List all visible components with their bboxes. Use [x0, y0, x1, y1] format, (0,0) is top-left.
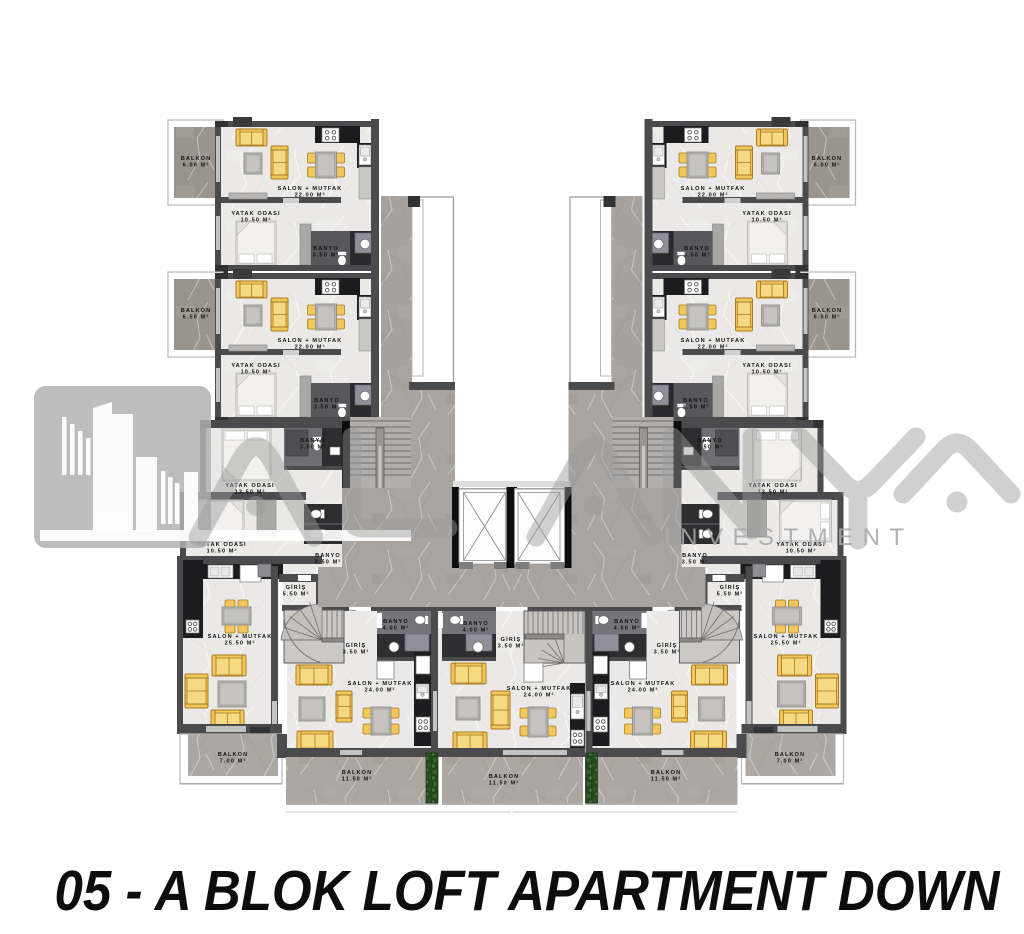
svg-text:3.50 M²: 3.50 M² [682, 558, 709, 565]
svg-text:3.50 M²: 3.50 M² [313, 251, 340, 258]
svg-text:BALKON: BALKON [651, 770, 682, 776]
svg-text:6.50 M²: 6.50 M² [183, 313, 210, 320]
svg-text:4.00 M²: 4.00 M² [614, 624, 641, 631]
svg-text:3.50 M²: 3.50 M² [315, 558, 342, 565]
svg-text:22.00 M²: 22.00 M² [295, 343, 326, 350]
svg-text:3.50 M²: 3.50 M² [314, 403, 341, 410]
svg-text:BALKON: BALKON [342, 770, 373, 776]
svg-text:SALON + MUTFAK: SALON + MUTFAK [754, 634, 819, 640]
svg-text:SALON + MUTFAK: SALON + MUTFAK [681, 338, 746, 344]
svg-text:BANYO: BANYO [313, 246, 339, 252]
svg-text:YATAK ODASI: YATAK ODASI [742, 363, 791, 369]
svg-text:3.50 M²: 3.50 M² [684, 251, 711, 258]
svg-text:BANYO: BANYO [684, 246, 710, 252]
svg-text:5.50 M²: 5.50 M² [717, 590, 744, 597]
svg-text:22.00 M²: 22.00 M² [698, 191, 729, 198]
svg-text:BALKON: BALKON [775, 752, 806, 758]
svg-text:4.00 M²: 4.00 M² [463, 626, 490, 633]
svg-text:6.00 M²: 6.00 M² [814, 161, 841, 168]
svg-text:3.50 M²: 3.50 M² [300, 443, 327, 450]
svg-text:BALKON: BALKON [489, 774, 520, 780]
svg-text:BANYO: BANYO [314, 398, 340, 404]
svg-text:BANYO: BANYO [315, 553, 341, 559]
svg-text:6.50 M²: 6.50 M² [814, 313, 841, 320]
svg-text:10.50 M²: 10.50 M² [207, 547, 238, 554]
svg-text:13.50 M²: 13.50 M² [758, 488, 789, 495]
svg-text:24.00 M²: 24.00 M² [365, 686, 396, 693]
svg-text:7.00 M²: 7.00 M² [777, 757, 804, 764]
svg-text:25.50 M²: 25.50 M² [225, 639, 256, 646]
svg-text:5.50 M²: 5.50 M² [283, 590, 310, 597]
svg-text:3.50 M²: 3.50 M² [697, 443, 724, 450]
svg-text:BALKON: BALKON [812, 156, 843, 162]
svg-text:4.00 M²: 4.00 M² [383, 624, 410, 631]
svg-text:22.00 M²: 22.00 M² [295, 191, 326, 198]
svg-text:10.50 M²: 10.50 M² [752, 368, 783, 375]
svg-text:GİRİŞ: GİRİŞ [346, 642, 367, 649]
svg-text:11.50 M²: 11.50 M² [489, 779, 520, 786]
svg-text:3.50 M²: 3.50 M² [683, 403, 710, 410]
svg-text:13.50 M²: 13.50 M² [235, 488, 266, 495]
svg-text:BALKON: BALKON [181, 156, 212, 162]
svg-text:SALON + MUTFAK: SALON + MUTFAK [208, 634, 273, 640]
svg-text:10.50 M²: 10.50 M² [241, 368, 272, 375]
svg-text:SALON + MUTFAK: SALON + MUTFAK [278, 338, 343, 344]
svg-text:BANYO: BANYO [614, 619, 640, 625]
svg-text:3.50 M²: 3.50 M² [343, 648, 370, 655]
svg-text:SALON + MUTFAK: SALON + MUTFAK [278, 186, 343, 192]
svg-text:10.50 M²: 10.50 M² [752, 216, 783, 223]
svg-text:GİRİŞ: GİRİŞ [720, 584, 741, 591]
svg-text:BALKON: BALKON [812, 308, 843, 314]
svg-text:BANYO: BANYO [300, 438, 326, 444]
svg-text:SALON + MUTFAK: SALON + MUTFAK [611, 681, 676, 687]
svg-text:GİRİŞ: GİRİŞ [286, 584, 307, 591]
svg-text:11.50 M²: 11.50 M² [342, 775, 373, 782]
svg-text:YATAK ODASI: YATAK ODASI [231, 363, 280, 369]
svg-text:7.00 M²: 7.00 M² [220, 757, 247, 764]
svg-text:YATAK ODASI: YATAK ODASI [231, 211, 280, 217]
svg-text:05 - A BLOK LOFT APARTMENT DOW: 05 - A BLOK LOFT APARTMENT DOWN [55, 859, 1002, 923]
svg-text:22.00 M²: 22.00 M² [698, 343, 729, 350]
svg-text:BANYO: BANYO [683, 398, 709, 404]
svg-text:BALKON: BALKON [218, 752, 249, 758]
svg-text:GİRİŞ: GİRİŞ [501, 636, 522, 643]
svg-text:24.00 M²: 24.00 M² [524, 691, 555, 698]
svg-text:YATAK ODASI: YATAK ODASI [742, 211, 791, 217]
svg-text:BANYO: BANYO [682, 553, 708, 559]
svg-text:SALON + MUTFAK: SALON + MUTFAK [681, 186, 746, 192]
svg-text:11.50 M²: 11.50 M² [651, 775, 682, 782]
svg-text:BANYO: BANYO [697, 438, 723, 444]
svg-text:BANYO: BANYO [463, 621, 489, 627]
svg-text:SALON + MUTFAK: SALON + MUTFAK [348, 681, 413, 687]
svg-text:INVESTMENT: INVESTMENT [664, 524, 914, 551]
svg-text:6.00 M²: 6.00 M² [183, 161, 210, 168]
svg-text:BALKON: BALKON [181, 308, 212, 314]
svg-text:3.50 M²: 3.50 M² [654, 648, 681, 655]
svg-text:10.50 M²: 10.50 M² [241, 216, 272, 223]
svg-text:25.50 M²: 25.50 M² [771, 639, 802, 646]
svg-text:24.00 M²: 24.00 M² [628, 686, 659, 693]
svg-text:SALON + MUTFAK: SALON + MUTFAK [507, 686, 572, 692]
svg-text:BANYO: BANYO [383, 619, 409, 625]
svg-text:3.50 M²: 3.50 M² [498, 642, 525, 649]
svg-text:GİRİŞ: GİRİŞ [657, 642, 678, 649]
